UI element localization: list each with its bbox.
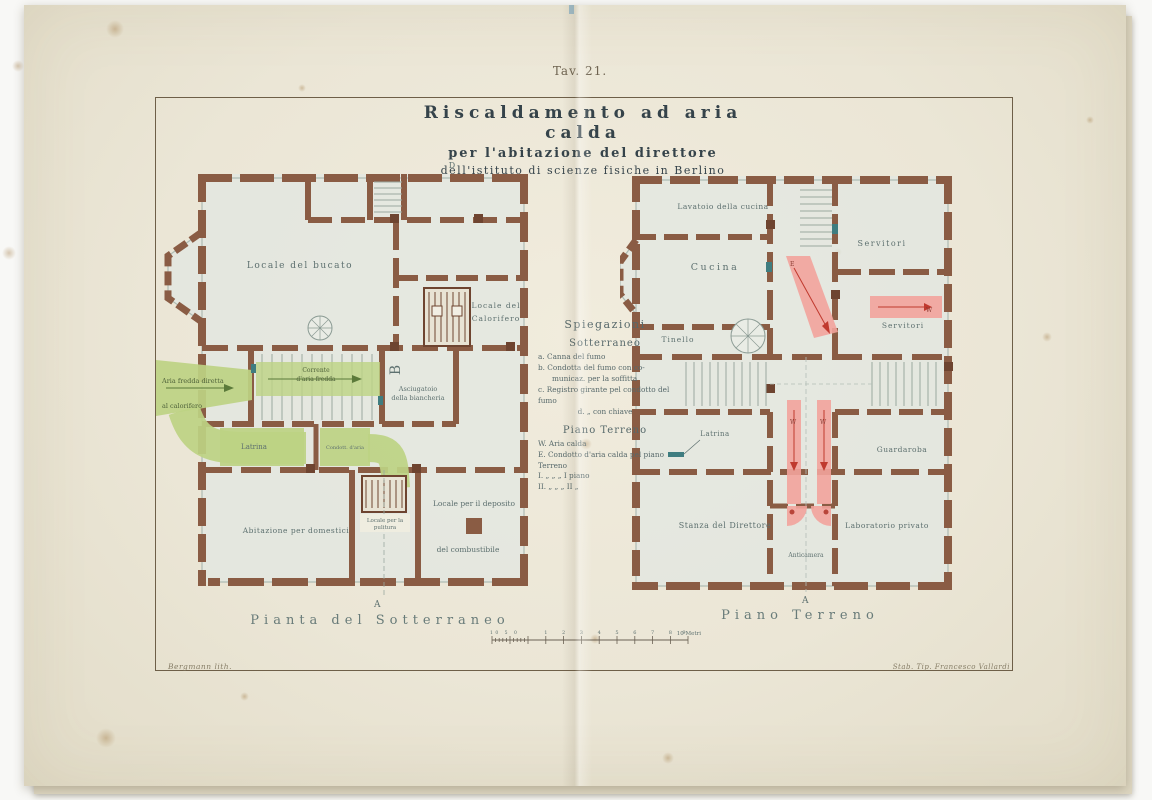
legend-heading: Spiegazioni (538, 318, 672, 331)
age-spot (12, 60, 24, 72)
lithographer-credit: Bergmann lith. (168, 662, 232, 671)
scale-sub-label: 10 5 0 (490, 630, 519, 636)
legend-line-b1: b. Condotta del fumo con co- (538, 363, 672, 374)
plate-number: Tav. 21. (535, 64, 625, 78)
room-label-anticamera: Anticamera (787, 552, 824, 559)
spiral-stair-treads (731, 319, 765, 353)
room-label-asciugatoio-2: della biancheria (391, 394, 444, 402)
legend-line-ii: II. „ „ „ II „ (538, 482, 672, 493)
printer-credit: Stab. Tip. Francesco Vallardi (870, 663, 1010, 671)
basement-caption: Pianta del Sotterraneo (240, 613, 520, 628)
legend-line-w: W. Aria calda (538, 439, 672, 450)
marker-letter-d: D (449, 161, 455, 170)
scale-number: 6 (633, 630, 636, 636)
duct-label-condotto: Condott. d'aria (326, 445, 364, 451)
room-label-lavatoio: Lavatoio della cucina (677, 202, 768, 211)
calorifero-furnace (424, 288, 470, 346)
photograph-of-plate: { "plate": { "tav_label": "Tav. 21.", "t… (0, 0, 1152, 800)
age-spot (96, 728, 116, 748)
room-label-latrina: Latrina (700, 430, 729, 438)
plate-title: Riscaldamento ad aria calda (383, 103, 783, 143)
room-label-stanza-direttore: Stanza del Direttore (679, 521, 771, 530)
room-label-laboratorio: Laboratorio privato (845, 521, 929, 530)
scale-number: 7 (651, 630, 654, 636)
room-label-cucina: Cucina (691, 262, 740, 273)
scale-number: 1 (544, 630, 547, 636)
legend-block: Spiegazioni Sotterraneo a. Canna del fum… (538, 318, 672, 493)
scale-bar: 10 5 0 1 2 3 4 5 6 7 8 9 10 Metri (486, 626, 702, 648)
legend-section-sotterraneo: Sotterraneo (538, 338, 672, 349)
room-label-calorifero-2: Calorifero (472, 314, 520, 323)
legend-line-d: d. „ con chiave (538, 407, 672, 418)
basement-floor-plan: Locale del bucato Locale del Calorifero … (156, 158, 560, 608)
room-label-servitori-1: Servitori (857, 239, 906, 248)
pillar (466, 518, 482, 534)
duct-label-corrente-1: Corrente (302, 367, 330, 374)
section-marker-a-left: A (374, 600, 381, 610)
age-spot (2, 246, 16, 260)
scale-number: 5 (615, 630, 618, 636)
legend-line-i: I. „ „ „ I piano (538, 471, 672, 482)
duct-letter-w1: W (926, 307, 933, 314)
scale-number: 2 (562, 630, 565, 636)
age-spot (662, 752, 674, 764)
duct-letter-e: E (790, 261, 794, 268)
age-spot (240, 692, 249, 701)
room-label-bucato: Locale del bucato (247, 261, 353, 271)
scale-number: 3 (580, 630, 583, 636)
room-label-asciugatoio-1: Asciugatoio (398, 385, 438, 393)
duct-letter-w2: W (790, 419, 797, 426)
age-spot (106, 20, 124, 38)
room-label-deposito-2: del combustibile (437, 545, 500, 554)
room-label-latrina: Latrina (241, 443, 267, 451)
age-spot (298, 84, 306, 92)
legend-line-e: E. Condotto d'aria calda pel piano Terre… (538, 450, 672, 472)
room-label-guardaroba: Guardaroba (877, 445, 928, 454)
room-label-deposito-1: Locale per il deposito (433, 499, 516, 508)
duct-label-aria-fredda-2: al calorifero (162, 402, 202, 410)
room-label-abitazione: Abitazione per domestici (242, 526, 350, 535)
room-label-servitori-2: Servitori (882, 321, 924, 330)
legend-section-piano-terreno: Piano Terreno (538, 425, 672, 436)
duct-label-aria-fredda-1: Aria fredda diretta (161, 377, 224, 385)
section-marker-a-right: A (802, 596, 809, 606)
room-label-calorifero-1: Locale del (471, 301, 520, 310)
age-spot (1042, 332, 1052, 342)
scale-number: 4 (598, 630, 601, 636)
legend-line-b2: municaz. per la soffitta (538, 374, 672, 385)
scale-unit: 10 Metri (677, 631, 701, 637)
age-spot (1086, 116, 1094, 124)
ground-caption: Piano Terreno (700, 608, 900, 623)
duct-label-corrente-2: d'aria fredda (296, 376, 336, 383)
marker-letter-b: B (388, 365, 404, 375)
binding-mark (569, 5, 574, 14)
room-label-pulitura-2: pulitura (374, 525, 397, 531)
legend-line-c: c. Registro girante pel condotto del fum… (538, 385, 672, 407)
room-label-pulitura-1: Locale per la (367, 518, 404, 524)
duct-letter-w3: W (820, 419, 827, 426)
legend-line-a: a. Canna del fumo (538, 352, 672, 363)
scale-number: 8 (669, 630, 672, 636)
